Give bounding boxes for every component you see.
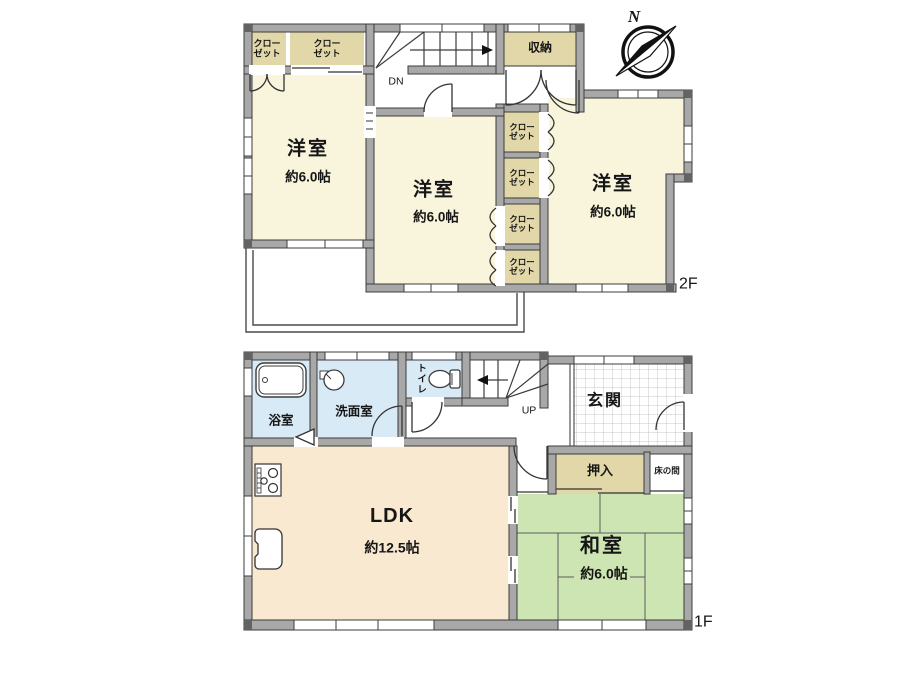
entrance-label: 玄関 — [587, 392, 623, 409]
kitchen-sink-icon — [255, 529, 282, 569]
toilet-icon — [429, 370, 460, 388]
bathtub-icon — [256, 363, 306, 397]
stairs-up-label: UP — [522, 405, 537, 416]
closet-label: クロー ゼット — [509, 215, 535, 233]
compass-north-label: N — [628, 8, 640, 26]
closet-label: クロー ゼット — [313, 39, 340, 58]
washroom-label: 洗面室 — [335, 405, 373, 419]
closet-label: クロー ゼット — [509, 169, 535, 187]
floorplan-canvas: N クロー ゼット クロー ゼット 収納 DN 洋室 約6.0帖 洋室 約6.0… — [0, 0, 920, 690]
closet-label: クロー ゼット — [253, 39, 280, 58]
bath-label: 浴室 — [268, 414, 293, 428]
western-room-2-name: 洋室 — [413, 181, 455, 202]
stairs-down-label: DN — [388, 76, 403, 87]
closet-label: クロー ゼット — [509, 123, 535, 141]
ldk-size: 約12.5帖 — [364, 540, 419, 555]
washitsu-name: 和室 — [580, 536, 624, 558]
tokonoma-label: 床の間 — [654, 466, 680, 475]
western-room-1-size: 約6.0帖 — [285, 171, 331, 186]
floor-label-2f: 2F — [679, 275, 698, 292]
stove-icon — [255, 464, 281, 496]
floorplan-drawing — [0, 0, 920, 690]
oshiire-label: 押入 — [587, 464, 613, 478]
western-room-2-size: 約6.0帖 — [413, 211, 459, 226]
storage-label: 収納 — [528, 42, 552, 55]
ldk-name: LDK — [370, 506, 414, 528]
western-room-3-size: 約6.0帖 — [590, 206, 636, 221]
floor-label-1f: 1F — [694, 613, 713, 630]
washitsu-size: 約6.0帖 — [580, 566, 627, 581]
western-room-1-name: 洋室 — [287, 140, 329, 161]
stairs-up-icon — [477, 360, 548, 398]
stairs-down-icon — [376, 32, 493, 68]
toilet-label: トイレ — [415, 363, 425, 395]
closet-label: クロー ゼット — [509, 258, 535, 276]
ldk-area — [252, 446, 509, 620]
compass-icon — [616, 26, 676, 77]
western-room-3-name: 洋室 — [592, 175, 634, 196]
